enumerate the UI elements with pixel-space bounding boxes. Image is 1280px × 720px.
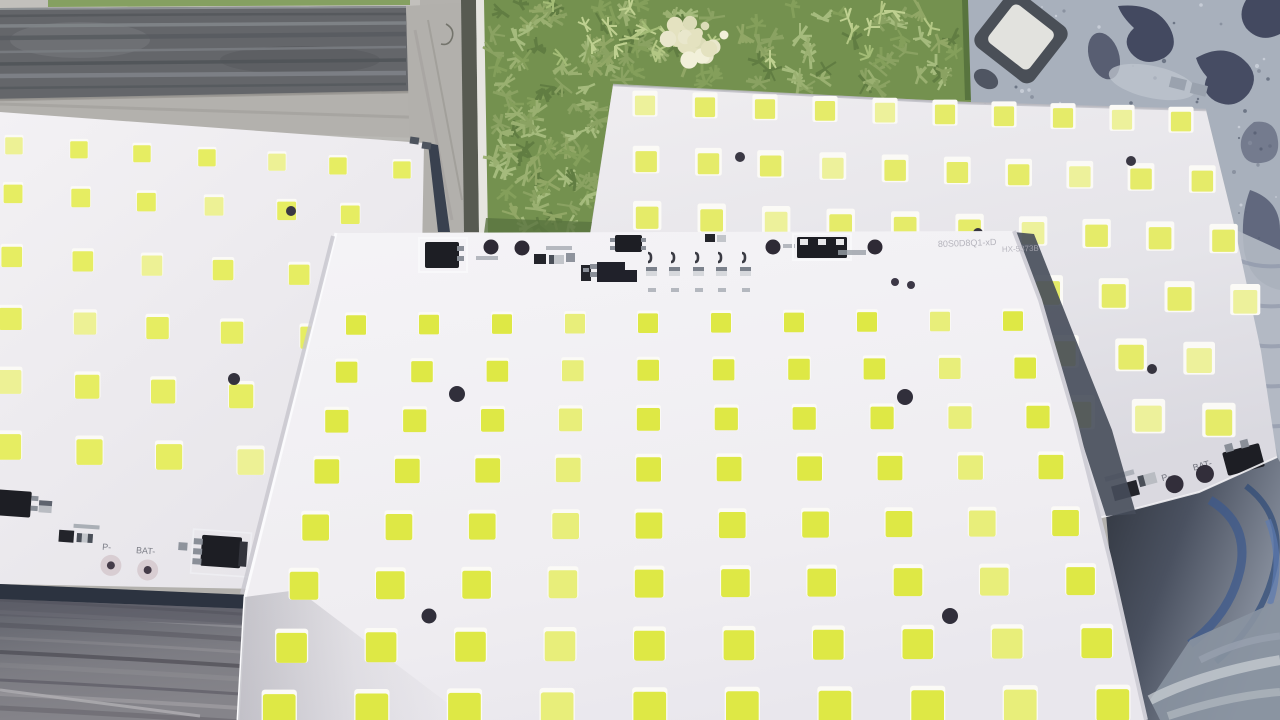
svg-text:80S0D8Q1-xD: 80S0D8Q1-xD — [938, 237, 997, 249]
svg-text:HX-5373B: HX-5373B — [1002, 244, 1039, 254]
svg-text:P-: P- — [102, 542, 112, 553]
svg-text:BAT-: BAT- — [136, 545, 156, 556]
